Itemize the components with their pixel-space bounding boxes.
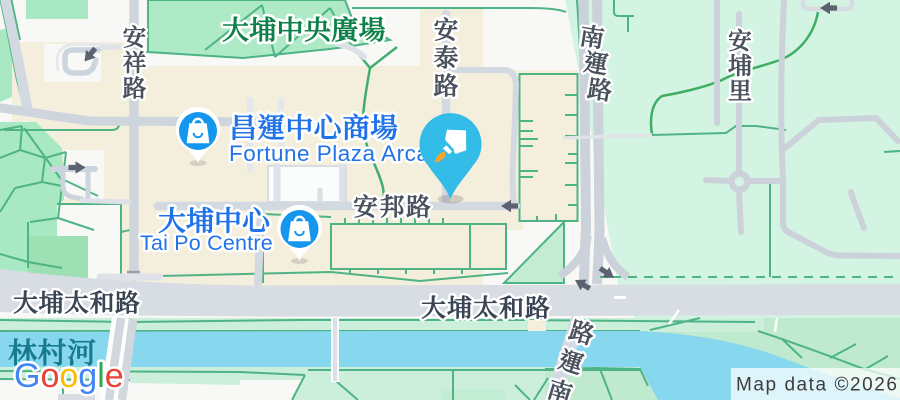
svg-text:Tai Po Centre: Tai Po Centre xyxy=(140,231,273,255)
svg-text:Map data ©2026: Map data ©2026 xyxy=(736,375,898,396)
svg-text:Google: Google xyxy=(14,357,124,395)
